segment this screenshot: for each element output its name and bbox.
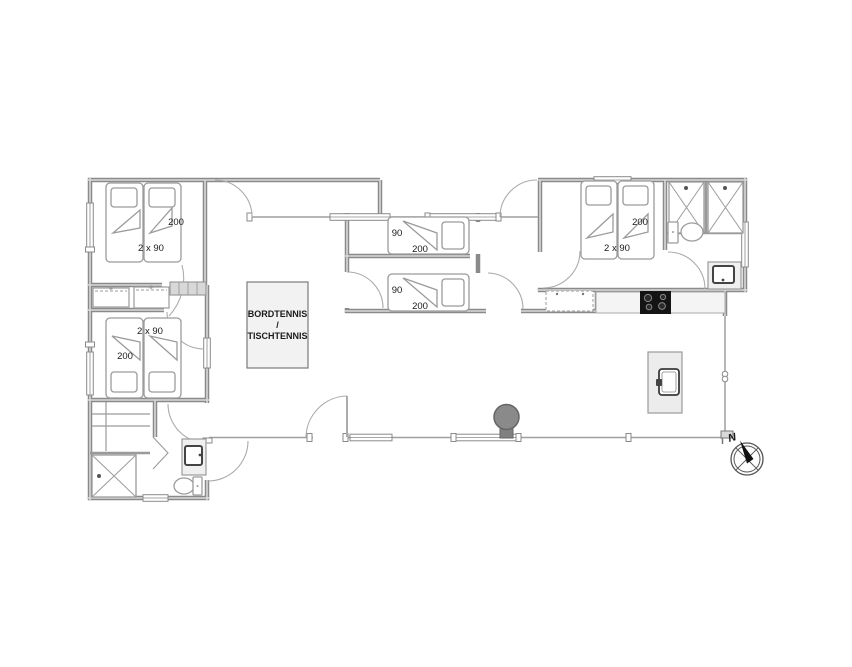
pillow — [442, 222, 464, 249]
table-tennis-table: BORDTENNIS / TISCHTENNIS — [247, 282, 308, 368]
floorplan-drawing: BORDTENNIS / TISCHTENNIS 200 2 x 90 2 x … — [0, 0, 852, 667]
kitchen — [546, 291, 725, 314]
faucet — [722, 279, 725, 282]
small-room-upper-length: 200 — [412, 244, 428, 255]
door-arc — [306, 396, 347, 438]
door-arc — [488, 273, 523, 309]
shower-head — [684, 186, 688, 190]
small-room-upper-width: 90 — [392, 228, 403, 239]
door-arc — [208, 441, 248, 481]
door-arc — [168, 404, 207, 443]
door-arc — [500, 180, 537, 217]
toilet-bowl — [174, 478, 194, 494]
north-label: N — [727, 431, 739, 445]
bedroom-mid-left-width: 2 x 90 — [137, 326, 163, 337]
shower-head — [723, 186, 727, 190]
wood-stove — [494, 405, 519, 439]
bedroom-right-width: 2 x 90 — [604, 243, 630, 254]
pillow — [442, 279, 464, 306]
kitchen-island — [648, 352, 682, 413]
small-room-lower-width: 90 — [392, 285, 403, 296]
pillow — [111, 372, 137, 392]
door-arc — [347, 272, 383, 308]
bedroom-top-left-length: 200 — [168, 217, 184, 228]
toilet-bowl — [681, 223, 703, 241]
pillow — [623, 186, 648, 205]
bathroom-bottom-left-fixtures — [174, 439, 206, 495]
pillow — [111, 188, 137, 207]
pillow — [149, 372, 175, 392]
table-tennis-label-line3: TISCHTENNIS — [247, 331, 307, 341]
under-counter-cabinet — [546, 291, 593, 311]
shower-drain — [97, 474, 101, 478]
door-arc — [215, 180, 252, 217]
table-tennis-label-line1: BORDTENNIS — [248, 309, 308, 319]
compass-rose: N — [727, 431, 763, 475]
shower-bottom-left — [92, 455, 136, 497]
pillow — [149, 188, 175, 207]
faucet — [199, 454, 202, 457]
glass-joint-marker — [722, 376, 728, 382]
door-arc — [668, 252, 705, 289]
bifold-closet-door — [153, 437, 168, 469]
door-arc — [543, 251, 580, 288]
small-room-lower-length: 200 — [412, 301, 428, 312]
island-faucet — [656, 379, 662, 386]
bedroom-mid-left-length: 200 — [117, 351, 133, 362]
closet-shelving — [92, 402, 150, 451]
cooktop — [640, 291, 671, 314]
bedroom-right-length: 200 — [632, 217, 648, 228]
bedroom-top-left-width: 2 x 90 — [138, 243, 164, 254]
shower — [708, 182, 743, 233]
floorplan-canvas: BORDTENNIS / TISCHTENNIS 200 2 x 90 2 x … — [0, 0, 852, 667]
pillow — [586, 186, 611, 205]
